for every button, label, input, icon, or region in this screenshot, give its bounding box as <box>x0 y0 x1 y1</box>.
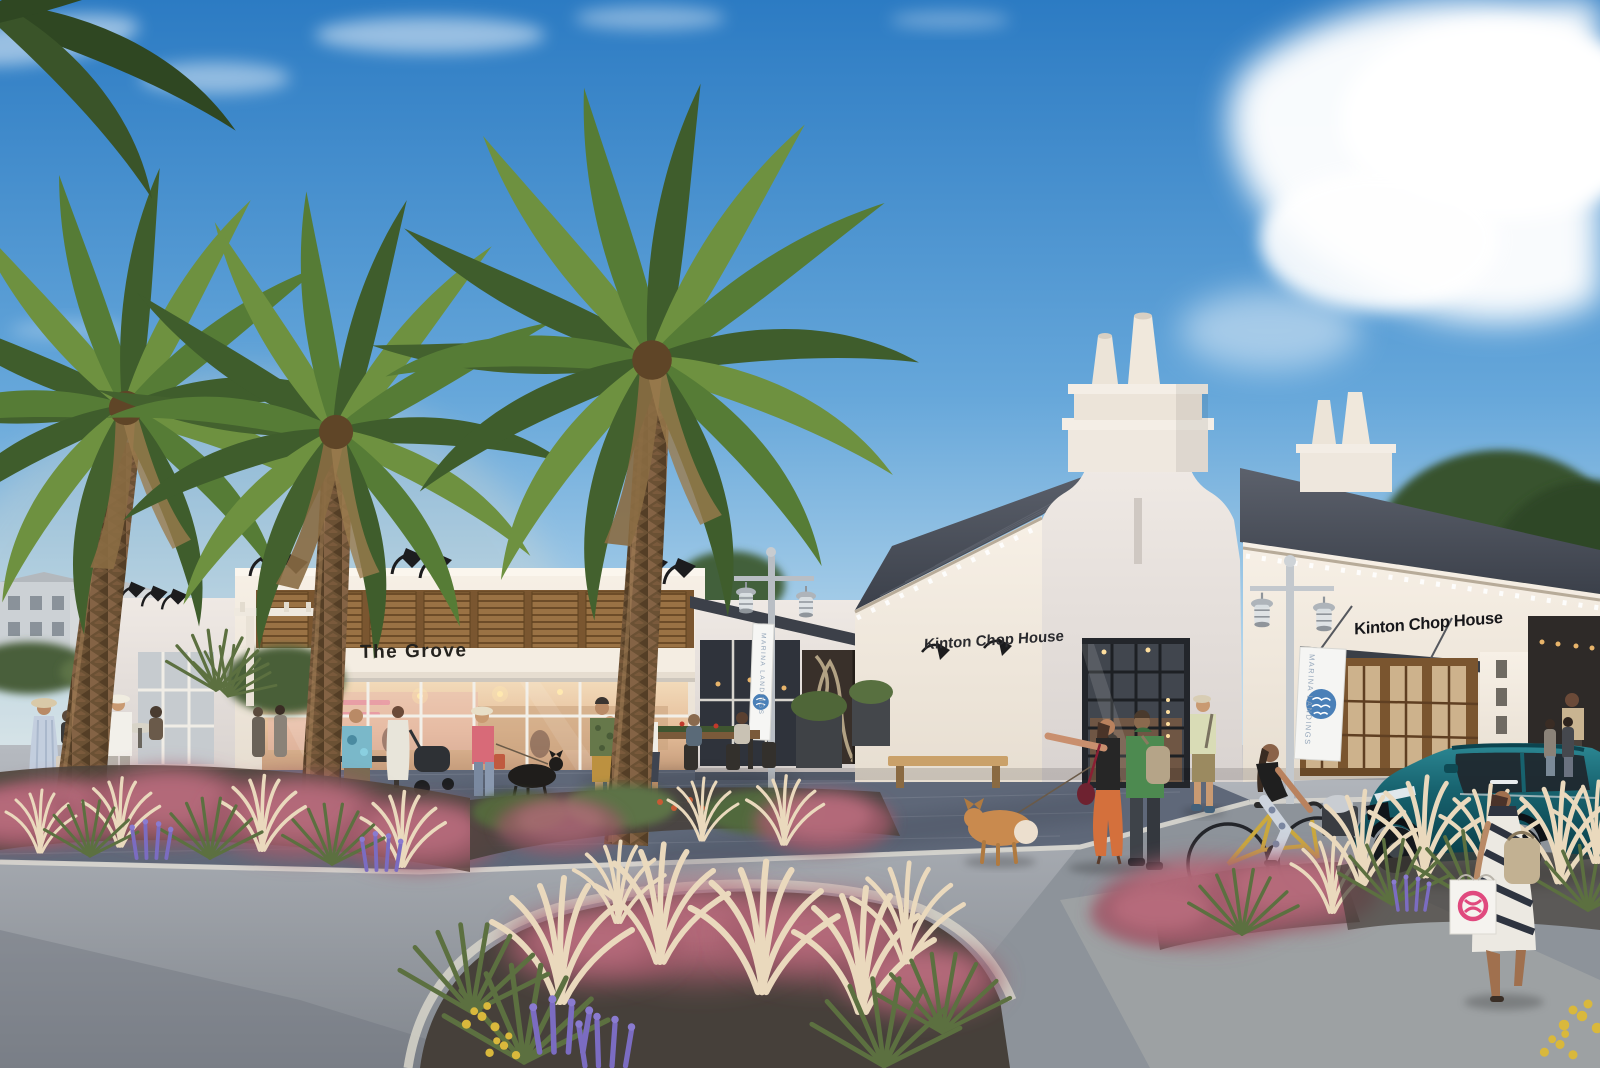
marina-landings-plaza-rendering: The Grove Kinton Chop House Kinton Chop … <box>0 0 1600 1068</box>
banner-b <box>1294 647 1346 761</box>
shopping-bag-pink-logo <box>1450 875 1496 934</box>
scene-canvas <box>0 0 1600 1068</box>
banner-a <box>749 624 774 741</box>
